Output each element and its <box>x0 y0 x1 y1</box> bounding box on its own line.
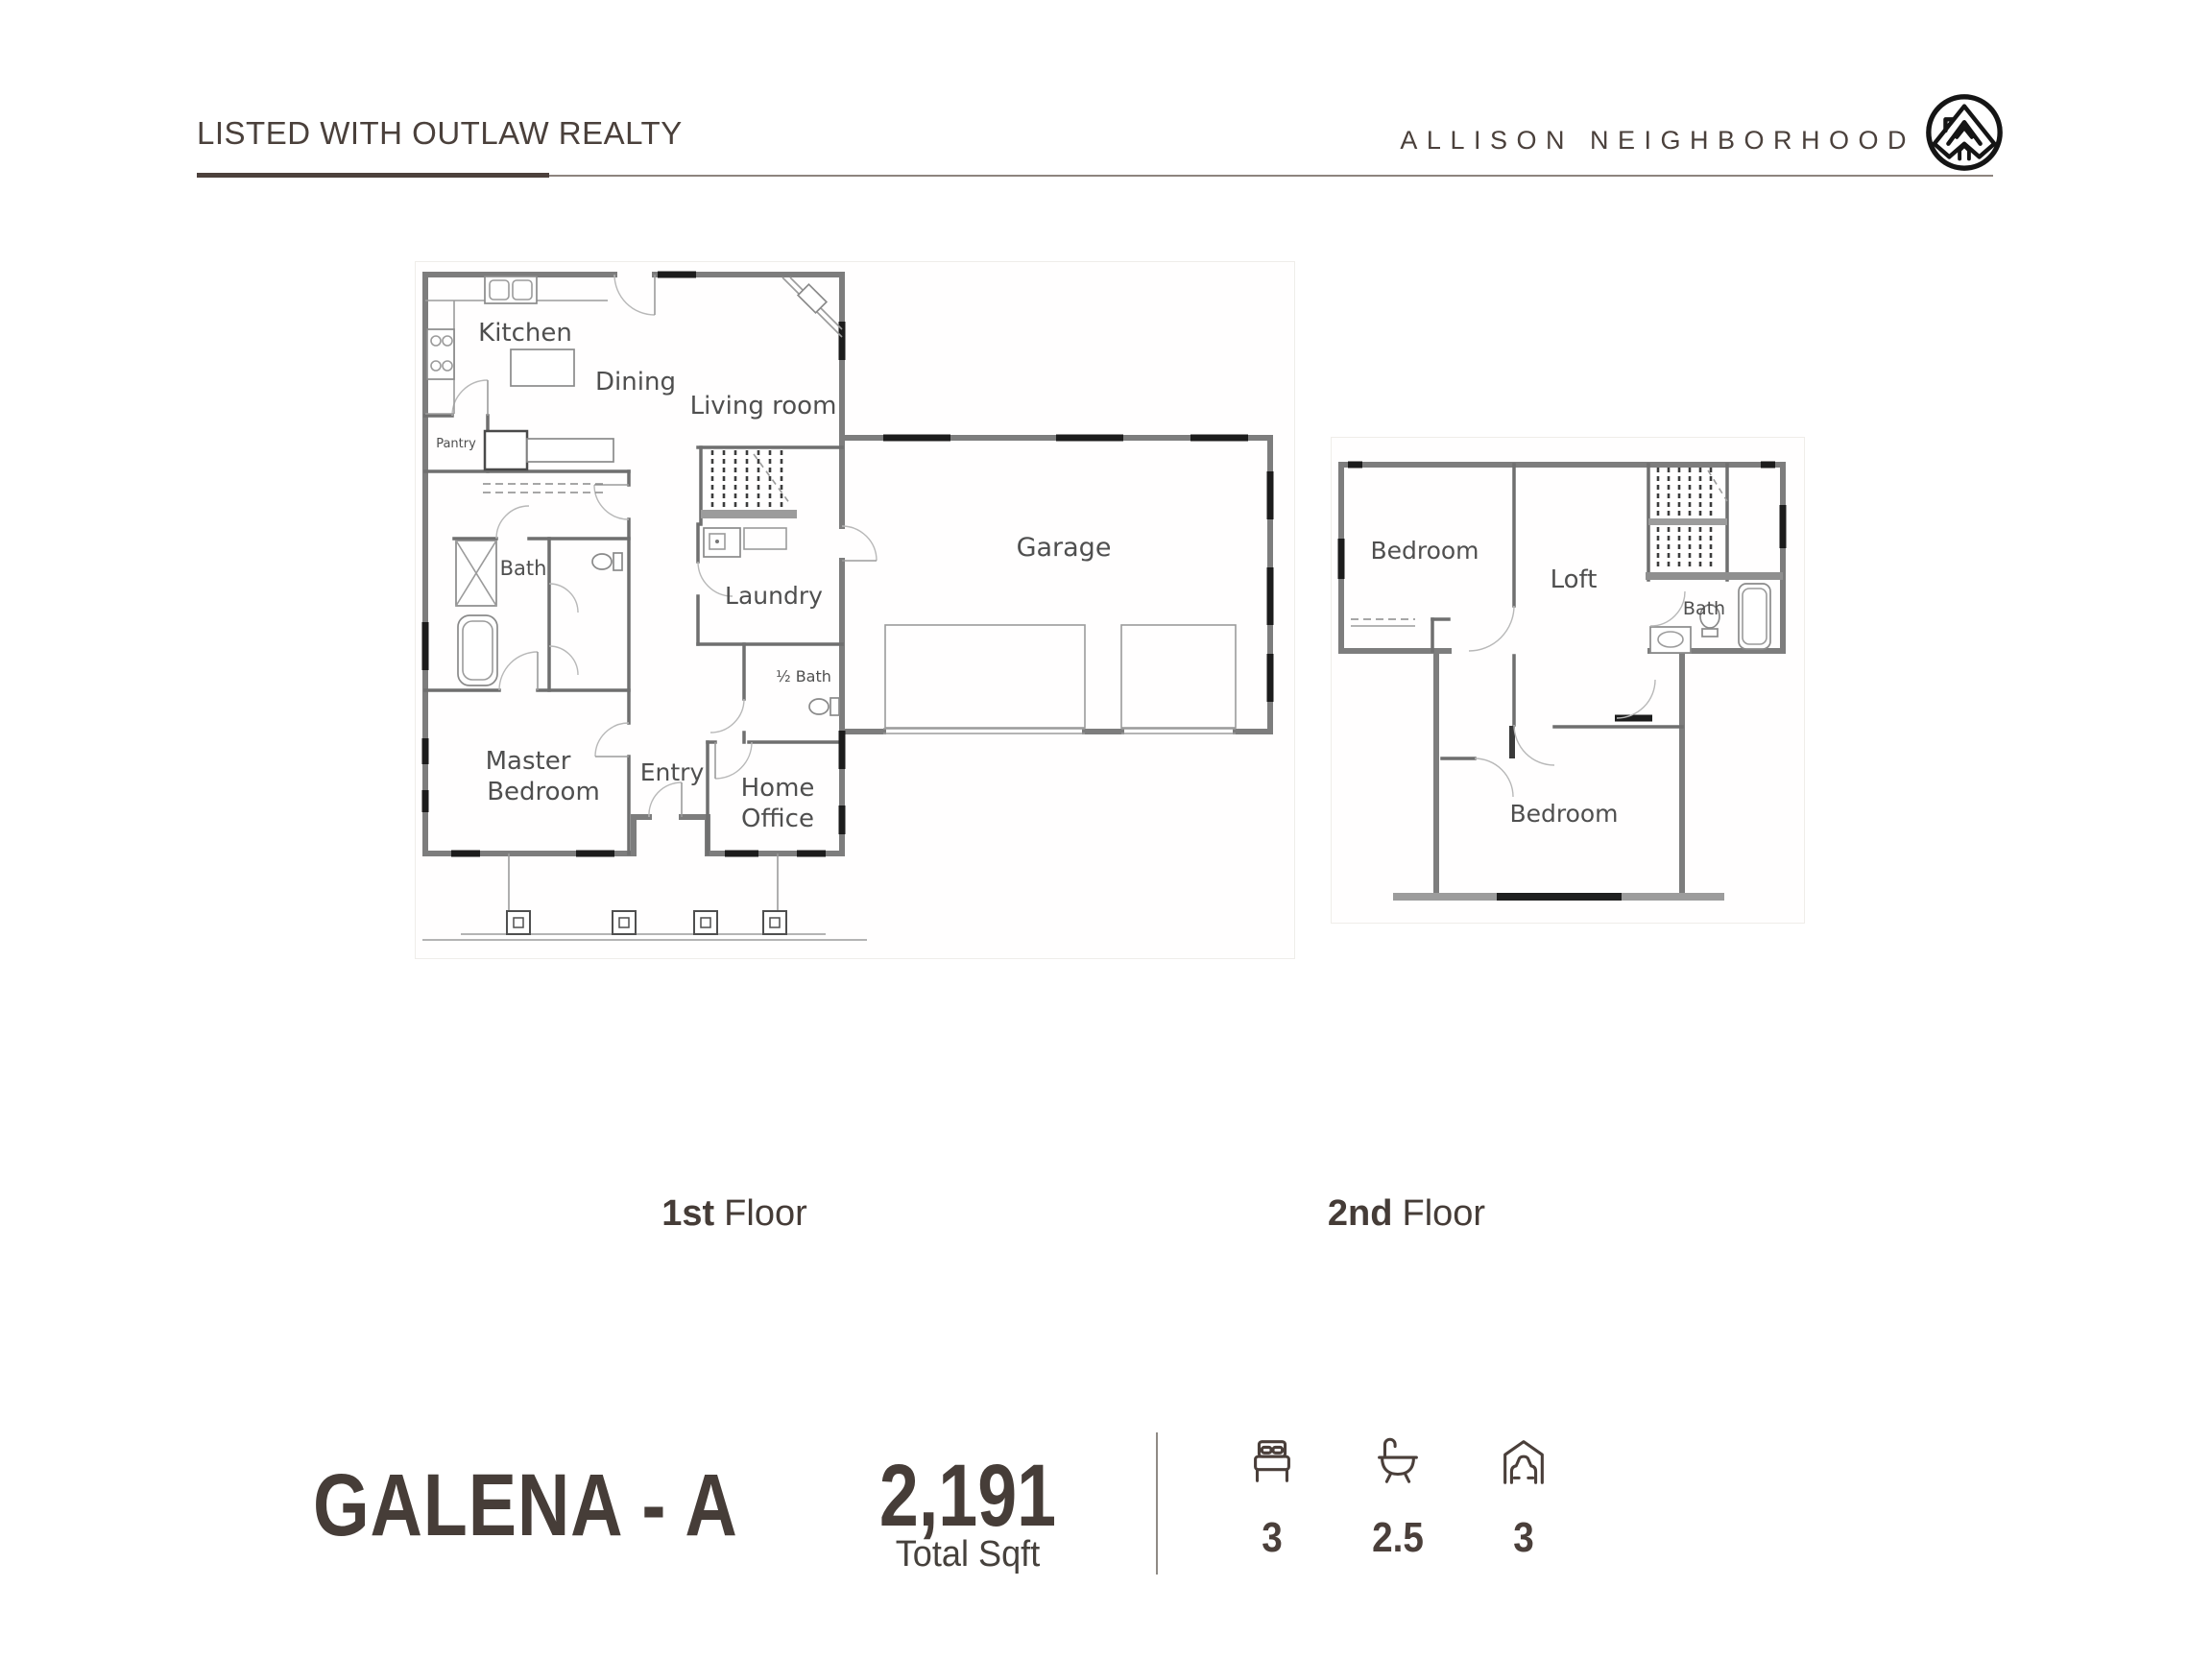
second-floor-caption-rest: Floor <box>1402 1193 1485 1234</box>
header-underline-thick <box>197 173 549 178</box>
floor1-room-labels: Kitchen Dining Living room Pantry Bath L… <box>436 319 1111 833</box>
garages-count: 3 <box>1478 1514 1571 1562</box>
floor2-room-labels: Bedroom Loft Bath Bedroom <box>1370 537 1725 828</box>
room-label-bedroom1: Bedroom <box>1370 537 1479 565</box>
room-label-loft: Loft <box>1551 565 1598 594</box>
flyer-page: LISTED WITH OUTLAW REALTY ALLISON NEIGHB… <box>0 0 2212 1659</box>
floor2-exterior-walls <box>1341 465 1783 897</box>
bed-icon <box>1244 1432 1300 1488</box>
room-label-office-2: Office <box>741 805 814 833</box>
floor1-stairs <box>701 450 797 518</box>
footer-divider <box>1156 1432 1158 1575</box>
bathtub-icon <box>1370 1432 1426 1488</box>
room-label-office-1: Home <box>741 774 815 803</box>
neighborhood-title: ALLISON NEIGHBORHOOD <box>1238 126 1915 156</box>
first-floor-plan: Kitchen Dining Living room Pantry Bath L… <box>415 261 1295 959</box>
room-label-kitchen: Kitchen <box>478 319 572 348</box>
second-floor-plan: Bedroom Loft Bath Bedroom <box>1331 437 1805 924</box>
room-label-bath: Bath <box>500 557 547 580</box>
room-label-master-1: Master <box>486 747 571 776</box>
room-label-half-bath: ½ Bath <box>776 667 831 685</box>
plan-name: GALENA - A <box>313 1455 738 1556</box>
floor2-stairs <box>1646 465 1783 580</box>
first-floor-caption-rest: Floor <box>724 1193 807 1234</box>
stat-garages: 3 <box>1471 1432 1576 1562</box>
garage-icon <box>1496 1432 1551 1488</box>
total-sqft-label: Total Sqft <box>850 1534 1087 1575</box>
outlaw-realty-logo-icon <box>1922 90 2007 175</box>
room-label-dining: Dining <box>595 368 676 397</box>
bathrooms-count: 2.5 <box>1352 1514 1445 1562</box>
room-label-master-2: Bedroom <box>487 778 600 806</box>
room-label-pantry: Pantry <box>436 437 476 451</box>
stat-bedrooms: 3 <box>1219 1432 1325 1562</box>
listed-with-title: LISTED WITH OUTLAW REALTY <box>197 115 683 152</box>
second-floor-caption-bold: 2nd <box>1328 1193 1393 1234</box>
room-label-bedroom2: Bedroom <box>1509 800 1618 828</box>
room-label-garage: Garage <box>1017 533 1112 563</box>
second-floor-caption: 2ndFloor <box>1262 1193 1551 1235</box>
bedrooms-count: 3 <box>1226 1514 1319 1562</box>
floor1-porch <box>422 854 867 940</box>
floor2-base <box>1393 893 1724 901</box>
room-label-laundry: Laundry <box>725 582 823 610</box>
room-label-entry: Entry <box>640 758 705 786</box>
header-underline-thin <box>549 175 1993 177</box>
first-floor-caption: 1stFloor <box>590 1193 878 1235</box>
room-label-bath2: Bath <box>1683 598 1725 619</box>
room-label-living: Living room <box>690 392 837 421</box>
stat-bathrooms: 2.5 <box>1345 1432 1451 1562</box>
total-sqft-value: 2,191 <box>868 1446 1068 1547</box>
first-floor-caption-bold: 1st <box>661 1193 714 1234</box>
floor2-doors <box>1469 591 1685 797</box>
